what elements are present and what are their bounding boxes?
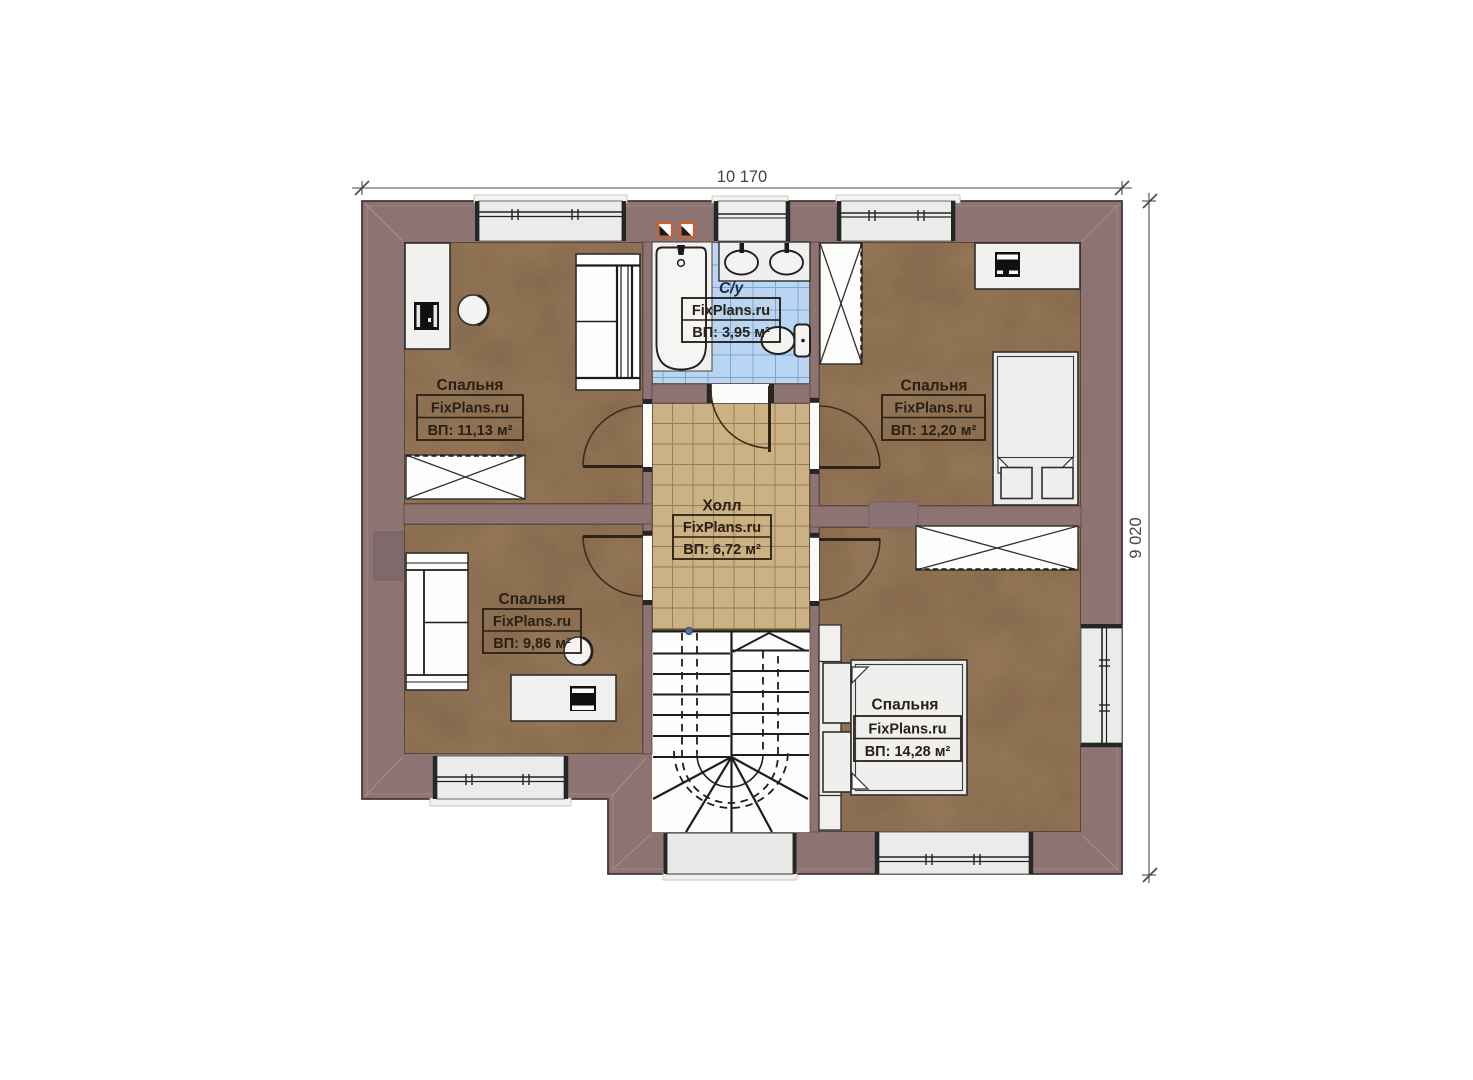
svg-text:FixPlans.ru: FixPlans.ru	[894, 401, 972, 417]
svg-text:9 020: 9 020	[1127, 517, 1145, 558]
svg-text:Спальня: Спальня	[872, 697, 939, 714]
svg-text:ВП: 6,72 м²: ВП: 6,72 м²	[683, 542, 761, 558]
svg-text:Спальня: Спальня	[499, 591, 566, 608]
svg-text:ВП: 14,28 м²: ВП: 14,28 м²	[865, 744, 951, 760]
svg-text:Спальня: Спальня	[901, 378, 968, 395]
svg-text:ВП: 9,86 м²: ВП: 9,86 м²	[493, 636, 571, 652]
svg-text:FixPlans.ru: FixPlans.ru	[868, 722, 946, 738]
svg-text:FixPlans.ru: FixPlans.ru	[692, 303, 770, 319]
svg-text:Спальня: Спальня	[437, 377, 504, 394]
svg-text:ВП: 12,20 м²: ВП: 12,20 м²	[891, 423, 977, 439]
svg-text:Холл: Холл	[703, 498, 742, 515]
svg-text:FixPlans.ru: FixPlans.ru	[493, 614, 571, 630]
svg-text:С/у: С/у	[719, 280, 745, 297]
svg-text:ВП: 11,13 м²: ВП: 11,13 м²	[428, 423, 513, 439]
svg-text:FixPlans.ru: FixPlans.ru	[683, 520, 761, 536]
svg-text:10 170: 10 170	[717, 168, 767, 186]
svg-text:FixPlans.ru: FixPlans.ru	[431, 401, 509, 417]
svg-text:ВП: 3,95 м²: ВП: 3,95 м²	[692, 325, 770, 341]
